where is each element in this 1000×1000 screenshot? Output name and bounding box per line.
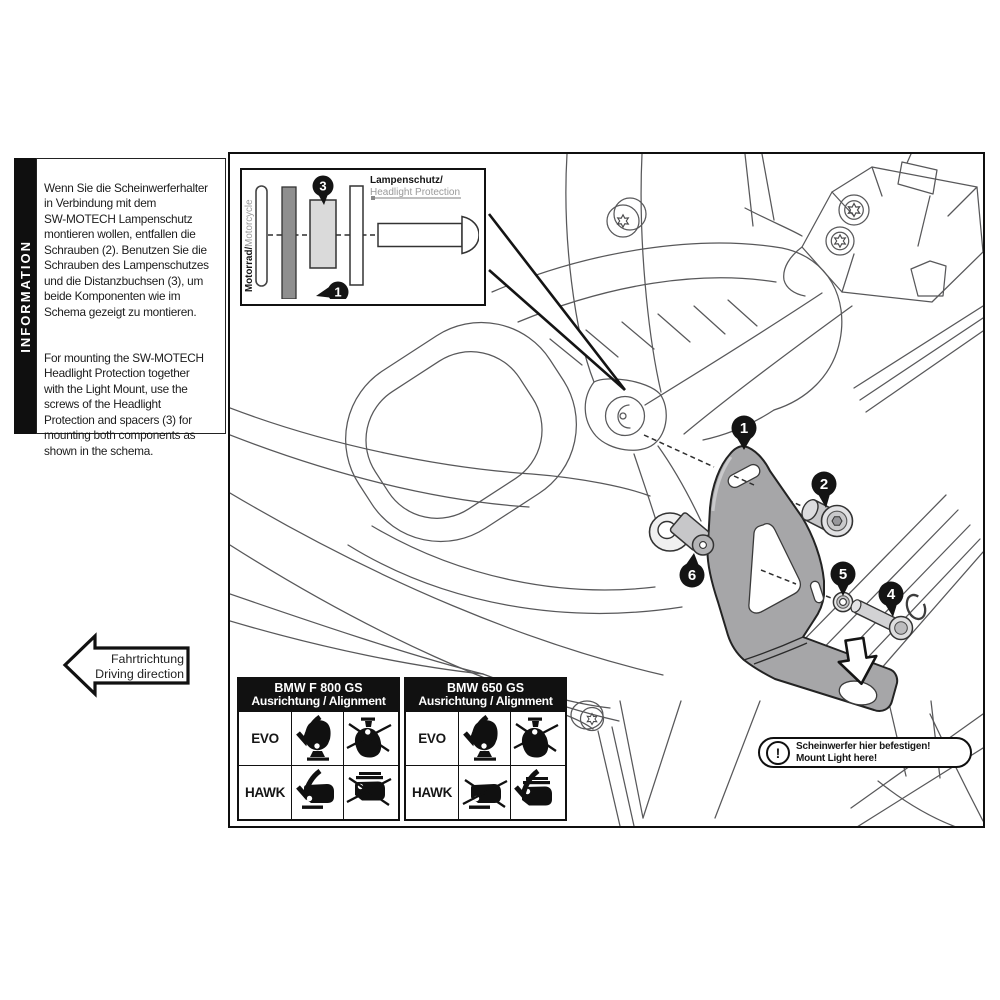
protection-label-de: Lampenschutz/: [370, 175, 443, 186]
hawk-upright-allowed-cell: [291, 766, 343, 819]
light-mount-plate: [282, 187, 296, 299]
row-label: HAWK: [239, 766, 291, 819]
manual-page: INFORMATION Wenn Sie die Scheinwerferhal…: [0, 0, 1000, 1000]
table-row-hawk: HAWK: [406, 765, 565, 819]
warning-text: Scheinwerfer hier befestigen! Mount Ligh…: [796, 741, 930, 764]
protection-label-en: Headlight Protection: [370, 187, 460, 198]
schema-drawing: Motorrad/Motorcycle Lampenschutz/ Headli…: [242, 170, 479, 299]
headlight-hanging-icon: [345, 715, 393, 763]
table-title-model: BMW 650 GS: [406, 681, 565, 695]
information-panel: INFORMATION Wenn Sie die Scheinwerferhal…: [14, 158, 226, 434]
info-paragraph-english: For mounting the SW-MOTECH Headlight Pro…: [44, 351, 219, 460]
panel-torx-screw-icon: [607, 198, 646, 237]
headlight-upright-icon: [461, 769, 509, 817]
row-label: EVO: [239, 712, 291, 765]
table-title-alignment: Ausrichtung / Alignment: [239, 695, 398, 708]
exclamation-icon: !: [766, 741, 790, 765]
mount-light-warning: ! Scheinwerfer hier befestigen! Mount Li…: [758, 737, 972, 768]
alignment-table-650gs: BMW 650 GS Ausrichtung / Alignment EVO: [404, 677, 567, 821]
table-title-model: BMW F 800 GS: [239, 681, 398, 695]
direction-label-english: Driving direction: [95, 667, 184, 681]
svg-text:4: 4: [887, 586, 896, 603]
svg-text:3: 3: [319, 179, 326, 194]
information-label: INFORMATION: [18, 240, 33, 353]
inset-callout-wedge: [489, 214, 625, 390]
evo-hanging-not-allowed-cell: [510, 712, 561, 765]
svg-text:1: 1: [740, 420, 748, 437]
table-header: BMW 650 GS Ausrichtung / Alignment: [406, 679, 565, 711]
table-title-alignment: Ausrichtung / Alignment: [406, 695, 565, 708]
motorcycle-axis-label: Motorrad/Motorcycle: [244, 199, 255, 292]
hawk-hanging-allowed-cell: [510, 766, 561, 819]
callout-1-mount: 1: [732, 416, 757, 451]
information-text: Wenn Sie die Scheinwerferhalter in Verbi…: [36, 158, 226, 434]
svg-text:5: 5: [839, 566, 847, 583]
alignment-table-f800gs: BMW F 800 GS Ausrichtung / Alignment EVO: [237, 677, 400, 821]
hawk-hanging-not-allowed-cell: [343, 766, 394, 819]
information-label-bar: INFORMATION: [14, 158, 36, 434]
table-row-evo: EVO: [239, 711, 398, 765]
protection-screw-head: [462, 217, 479, 254]
callout-6-bushing: 6: [680, 553, 705, 588]
headlight-lens: [344, 329, 565, 540]
hawk-upright-not-allowed-cell: [458, 766, 510, 819]
evo-upright-allowed-cell: [458, 712, 510, 765]
reservoir-torx-screw-icon: [839, 195, 869, 225]
svg-text:6: 6: [688, 567, 696, 584]
warning-line-german: Scheinwerfer hier befestigen!: [796, 741, 930, 753]
spacer-bushing-part: [650, 512, 714, 555]
motorcycle-body-part: [256, 186, 267, 286]
headlight-hanging-icon: [345, 769, 393, 817]
info-paragraph-german: Wenn Sie die Scheinwerferhalter in Verbi…: [44, 181, 219, 321]
callout-1-mount-inset: 1: [316, 282, 349, 300]
row-label: HAWK: [406, 766, 458, 819]
headlight-hanging-icon: [512, 715, 560, 763]
headlight-protection-plate: [350, 186, 363, 285]
evo-upright-allowed-cell: [291, 712, 343, 765]
reservoir-torx-screw2-icon: [826, 227, 854, 255]
svg-text:1: 1: [334, 285, 341, 300]
protection-screw-body: [378, 224, 462, 247]
direction-label-german: Fahrtrichtung: [111, 652, 184, 666]
brake-reservoir-assembly: [745, 154, 983, 302]
headlight-upright-icon: [294, 715, 342, 763]
table-header: BMW F 800 GS Ausrichtung / Alignment: [239, 679, 398, 711]
headlight-upright-icon: [461, 715, 509, 763]
driving-direction-arrow: Fahrtrichtung Driving direction: [60, 632, 194, 703]
label-leader-dot: [371, 196, 375, 200]
headlight-upright-icon: [294, 769, 342, 817]
warning-line-english: Mount Light here!: [796, 753, 930, 765]
table-row-evo: EVO: [406, 711, 565, 765]
mounting-schema-inset: Motorrad/Motorcycle Lampenschutz/ Headli…: [240, 168, 486, 306]
row-label: EVO: [406, 712, 458, 765]
headlight-hanging-icon: [512, 769, 560, 817]
evo-hanging-not-allowed-cell: [343, 712, 394, 765]
spacer-part: [310, 200, 336, 268]
table-row-hawk: HAWK: [239, 765, 398, 819]
diagram-frame: 1 2 6 5 4: [228, 152, 985, 828]
svg-text:2: 2: [820, 476, 828, 493]
left-arrow-icon: Fahrtrichtung Driving direction: [60, 632, 194, 698]
